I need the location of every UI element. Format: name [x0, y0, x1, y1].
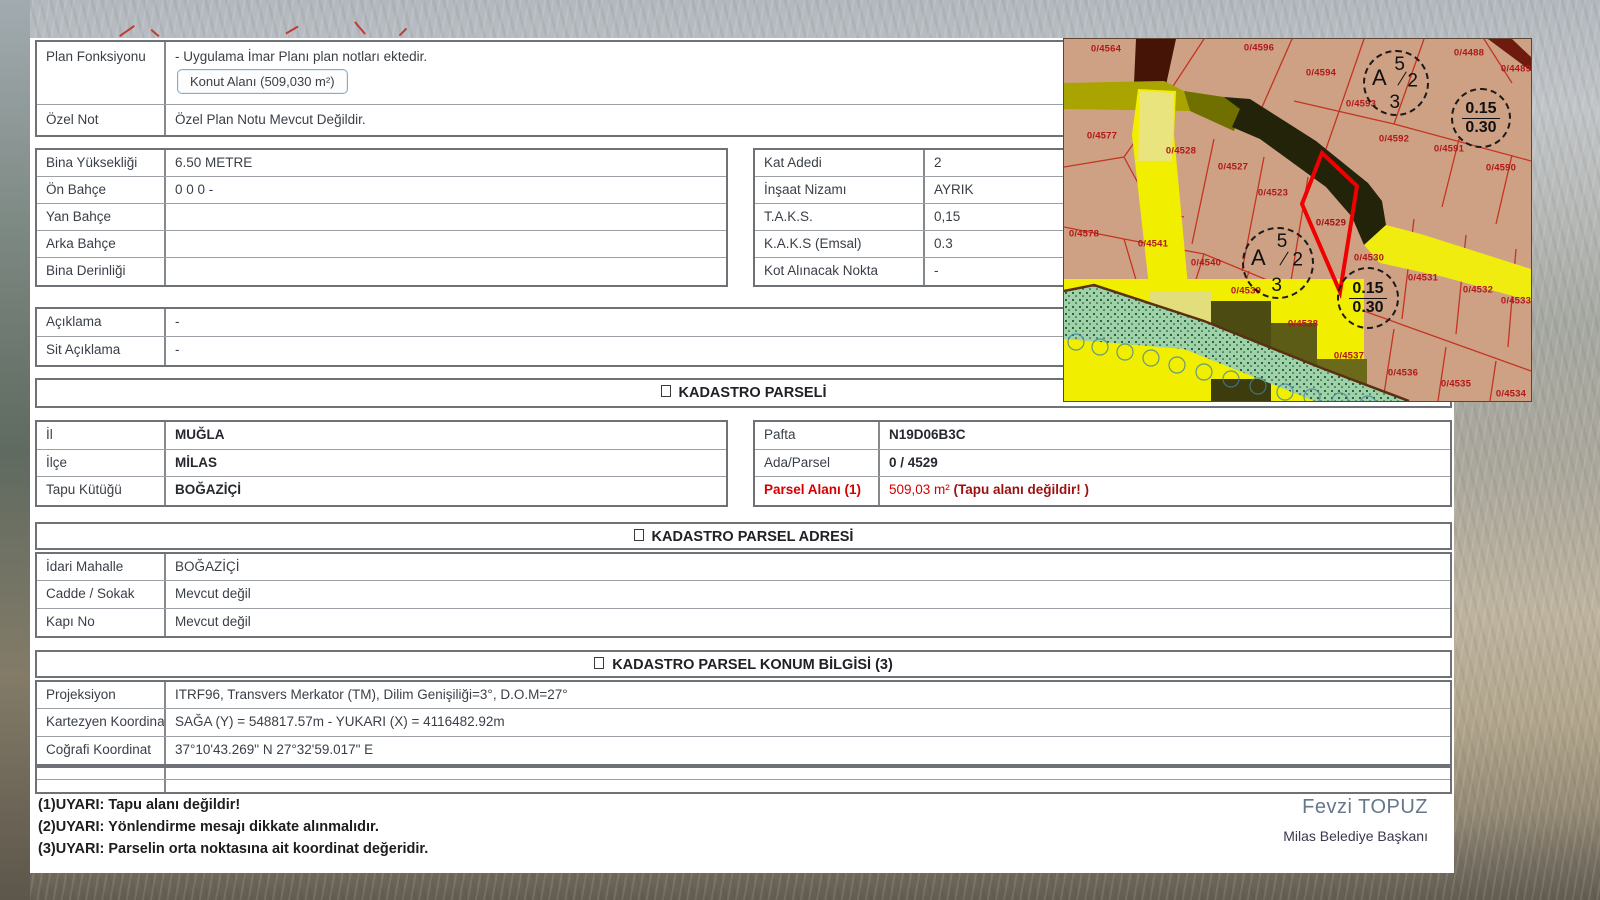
parsel-alani-number: 509,03 m²: [889, 482, 950, 497]
map-parcel-label: 0/4532: [1463, 285, 1493, 296]
table-row: Parsel Alanı (1) 509,03 m² (Tapu alanı d…: [755, 477, 1450, 505]
zoning-symbol-nizam: 5A23: [1242, 227, 1314, 299]
section-title: KADASTRO PARSEL ADRESİ: [652, 529, 854, 545]
table-row: İlçeMİLAS: [37, 450, 726, 478]
field-label: Tapu Kütüğü: [37, 477, 166, 505]
section-title: KADASTRO PARSEL KONUM BİLGİSİ (3): [612, 657, 893, 673]
map-parcel-label: 0/4488: [1454, 48, 1484, 59]
map-parcel-label: 0/4577: [1087, 131, 1117, 142]
table-row: [37, 768, 1450, 780]
map-parcel-label: 0/4538: [1288, 319, 1318, 330]
field-value: MİLAS: [166, 450, 726, 477]
parsel-alani-note: (Tapu alanı değildir! ): [950, 482, 1089, 497]
map-parcel-label: 0/4535: [1441, 379, 1471, 390]
section-title: KADASTRO PARSELİ: [679, 385, 827, 401]
field-label: [37, 780, 166, 792]
field-value: MUĞLA: [166, 422, 726, 449]
table-row: Arka Bahçe: [37, 231, 726, 258]
zoning-symbol-text: 5: [1277, 232, 1288, 251]
table-row: Kartezyen KoordinatSAĞA (Y) = 548817.57m…: [37, 709, 1450, 736]
field-value: 37°10'43.269" N 27°32'59.017" E: [166, 737, 1450, 764]
field-value: 6.50 METRE: [166, 150, 726, 176]
field-value: SAĞA (Y) = 548817.57m - YUKARI (X) = 411…: [166, 709, 1450, 735]
field-value: Mevcut değil: [166, 609, 1450, 636]
field-label: Arka Bahçe: [37, 231, 166, 257]
map-parcel-label: 0/4590: [1486, 163, 1516, 174]
kadastro-left-table: İlMUĞLA İlçeMİLAS Tapu KütüğüBOĞAZİÇİ: [35, 420, 728, 507]
zoning-symbol-text: 0.15: [1462, 100, 1499, 119]
zoning-symbol-nizam: 5A23: [1363, 50, 1429, 116]
table-row: Yan Bahçe: [37, 204, 726, 231]
map-parcel-label: 0/4537: [1334, 351, 1364, 362]
field-value: [166, 204, 726, 230]
section-header-konum: KADASTRO PARSEL KONUM BİLGİSİ (3): [35, 650, 1452, 678]
table-row: Bina Derinliği: [37, 258, 726, 285]
section-header-adres: KADASTRO PARSEL ADRESİ: [35, 522, 1452, 550]
table-row: Coğrafi Koordinat37°10'43.269" N 27°32'5…: [37, 737, 1450, 764]
square-glyph-icon: [661, 385, 671, 397]
zoning-symbol-text: 0.30: [1462, 119, 1499, 137]
field-value: 0 / 4529: [880, 450, 1450, 477]
warnings-block: (1)UYARI: Tapu alanı değildir! (2)UYARI:…: [38, 794, 428, 860]
map-parcel-label: 0/4596: [1244, 43, 1274, 54]
map-parcel-label: 0/4536: [1388, 368, 1418, 379]
zoning-symbol-text: 0.15: [1349, 280, 1386, 299]
table-row: ProjeksiyonITRF96, Transvers Merkator (T…: [37, 682, 1450, 709]
map-parcel-label: 0/4592: [1379, 134, 1409, 145]
signature-title: Milas Belediye Başkanı: [1283, 828, 1428, 844]
zoning-symbol-text: 2: [1407, 71, 1418, 90]
map-parcel-label: 0/4489: [1501, 64, 1531, 75]
warning-line: (2)UYARI: Yönlendirme mesajı dikkate alı…: [38, 816, 428, 838]
yapilasma-left-table: Bina Yüksekliği6.50 METRE Ön Bahçe0 0 0 …: [35, 148, 728, 287]
field-value: [166, 258, 726, 285]
zoning-symbol-text: A: [1372, 67, 1387, 89]
field-label: Sit Açıklama: [37, 337, 166, 365]
field-value: Mevcut değil: [166, 581, 1450, 607]
table-row: Cadde / SokakMevcut değil: [37, 581, 1450, 608]
field-value: BOĞAZİÇİ: [166, 554, 1450, 580]
zoning-symbol-text: 2: [1292, 251, 1303, 270]
field-label: Projeksiyon: [37, 682, 166, 708]
table-row: [37, 780, 1450, 792]
field-value: ITRF96, Transvers Merkator (TM), Dilim G…: [166, 682, 1450, 708]
field-label: Kot Alınacak Nokta: [755, 258, 925, 285]
field-label: İlçe: [37, 450, 166, 477]
table-row: İlMUĞLA: [37, 422, 726, 450]
field-value: BOĞAZİÇİ: [166, 477, 726, 505]
parsel-alani-value: 509,03 m² (Tapu alanı değildir! ): [880, 477, 1450, 505]
map-parcel-label: 0/4527: [1218, 162, 1248, 173]
parsel-alani-label: Parsel Alanı (1): [755, 477, 880, 505]
page: { "plan": { "rows": [ {"label": "Plan Fo…: [0, 0, 1600, 900]
field-label: Bina Derinliği: [37, 258, 166, 285]
field-label: [37, 768, 166, 779]
field-label: Kat Adedi: [755, 150, 925, 176]
map-parcel-label: 0/4530: [1354, 253, 1384, 264]
field-value: [166, 780, 1450, 792]
kadastro-right-table: PaftaN19D06B3C Ada/Parsel0 / 4529 Parsel…: [753, 420, 1452, 507]
table-row: Kapı NoMevcut değil: [37, 609, 1450, 636]
field-label: Ada/Parsel: [755, 450, 880, 477]
warning-line: (3)UYARI: Parselin orta noktasına ait ko…: [38, 838, 428, 860]
table-row: Ön Bahçe0 0 0 -: [37, 177, 726, 204]
map-parcel-label: 0/4540: [1191, 258, 1221, 269]
map-parcel-label: 0/4523: [1258, 188, 1288, 199]
map-parcel-label: 0/4594: [1306, 68, 1336, 79]
table-row: İdari MahalleBOĞAZİÇİ: [37, 554, 1450, 581]
field-label: İdari Mahalle: [37, 554, 166, 580]
map-parcel-label: 0/4591: [1434, 144, 1464, 155]
photo-background-mountains: [0, 0, 30, 900]
field-label: Kartezyen Koordinat: [37, 709, 166, 735]
field-label: Açıklama: [37, 309, 166, 336]
field-label: Cadde / Sokak: [37, 581, 166, 607]
zoning-symbol-text: A: [1251, 247, 1266, 269]
square-glyph-icon: [634, 529, 644, 541]
map-overlay: 0/45640/45960/45940/44880/44890/45930/45…: [1064, 39, 1531, 401]
field-label: İl: [37, 422, 166, 449]
table-row: Bina Yüksekliği6.50 METRE: [37, 150, 726, 177]
konum-table: ProjeksiyonITRF96, Transvers Merkator (T…: [35, 680, 1452, 766]
map-parcel-label: 0/4578: [1069, 229, 1099, 240]
field-label: Kapı No: [37, 609, 166, 636]
field-label: Plan Fonksiyonu: [37, 42, 166, 104]
field-label: Coğrafi Koordinat: [37, 737, 166, 764]
map-parcel-label: 0/4534: [1496, 389, 1526, 400]
cadastral-map[interactable]: 0/45640/45960/45940/44880/44890/45930/45…: [1063, 38, 1532, 402]
signature-block: Fevzi TOPUZ Milas Belediye Başkanı: [1283, 796, 1428, 844]
table-row: Tapu KütüğüBOĞAZİÇİ: [37, 477, 726, 505]
map-parcel-label: 0/4529: [1316, 218, 1346, 229]
table-row: Ada/Parsel0 / 4529: [755, 450, 1450, 478]
map-parcel-label: 0/4531: [1408, 273, 1438, 284]
map-parcel-label: 0/4528: [1166, 146, 1196, 157]
field-label: Pafta: [755, 422, 880, 449]
map-parcel-label: 0/4541: [1138, 239, 1168, 250]
signature-name: Fevzi TOPUZ: [1283, 796, 1428, 819]
field-label: İnşaat Nizamı: [755, 177, 925, 203]
table-row: PaftaN19D06B3C: [755, 422, 1450, 450]
field-label: Bina Yüksekliği: [37, 150, 166, 176]
field-value: N19D06B3C: [880, 422, 1450, 449]
adres-table: İdari MahalleBOĞAZİÇİ Cadde / SokakMevcu…: [35, 552, 1452, 638]
zoning-symbol-text: 0.30: [1349, 299, 1386, 317]
field-value: [166, 768, 1450, 779]
zoning-symbol-ratio: 0.150.30: [1337, 267, 1399, 329]
field-value: [166, 231, 726, 257]
field-label: Ön Bahçe: [37, 177, 166, 203]
field-value: 0 0 0 -: [166, 177, 726, 203]
map-parcel-label: 0/4564: [1091, 44, 1121, 55]
zoning-symbol-text: 3: [1389, 93, 1400, 112]
empty-strip-table: [35, 766, 1452, 794]
zoning-symbol-text: [1279, 251, 1288, 265]
map-parcel-label: 0/4533: [1501, 296, 1531, 307]
field-label: Özel Not: [37, 105, 166, 135]
field-label: T.A.K.S.: [755, 204, 925, 230]
field-label: Yan Bahçe: [37, 204, 166, 230]
zoning-symbol-text: 3: [1271, 276, 1282, 295]
square-glyph-icon: [594, 657, 604, 669]
zoning-symbol-text: 5: [1394, 55, 1405, 74]
konut-alani-button[interactable]: Konut Alanı (509,030 m²): [177, 69, 348, 94]
zoning-symbol-ratio: 0.150.30: [1451, 88, 1511, 148]
warning-line: (1)UYARI: Tapu alanı değildir!: [38, 794, 428, 816]
field-label: K.A.K.S (Emsal): [755, 231, 925, 257]
